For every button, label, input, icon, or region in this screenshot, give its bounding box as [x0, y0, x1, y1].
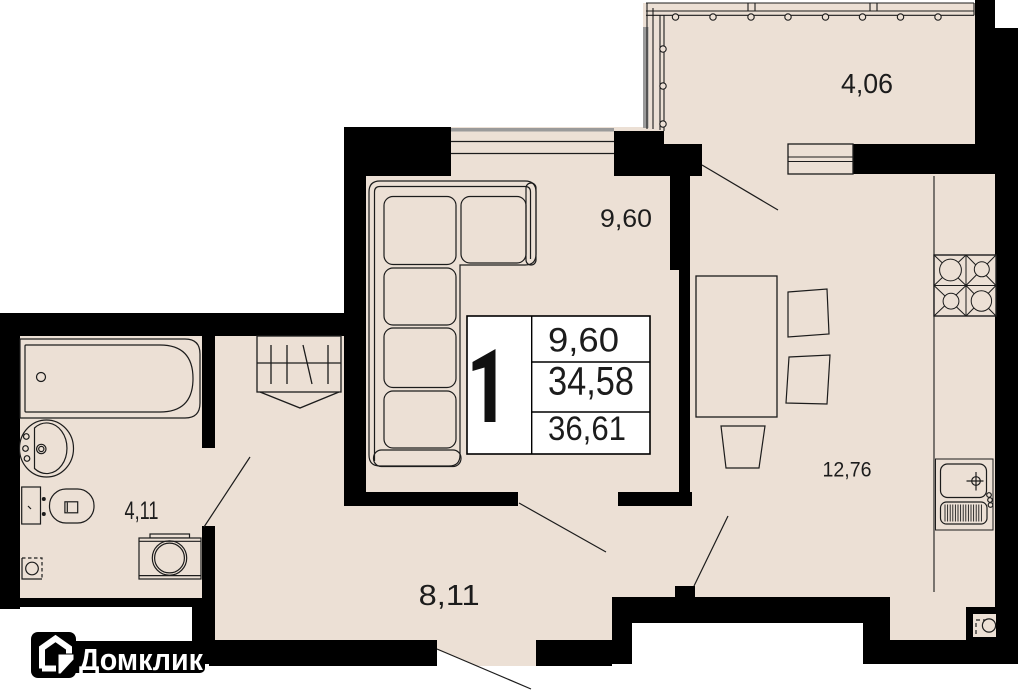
svg-text:9,60: 9,60 — [600, 205, 652, 233]
svg-text:9,60: 9,60 — [548, 322, 619, 360]
svg-text:36,61: 36,61 — [548, 410, 626, 448]
svg-text:12,76: 12,76 — [823, 458, 872, 482]
svg-text:4,06: 4,06 — [841, 68, 893, 99]
svg-text:Домклик: Домклик — [79, 642, 203, 677]
svg-text:34,58: 34,58 — [548, 360, 634, 404]
svg-text:4,11: 4,11 — [125, 497, 159, 525]
svg-text:8,11: 8,11 — [419, 580, 480, 612]
